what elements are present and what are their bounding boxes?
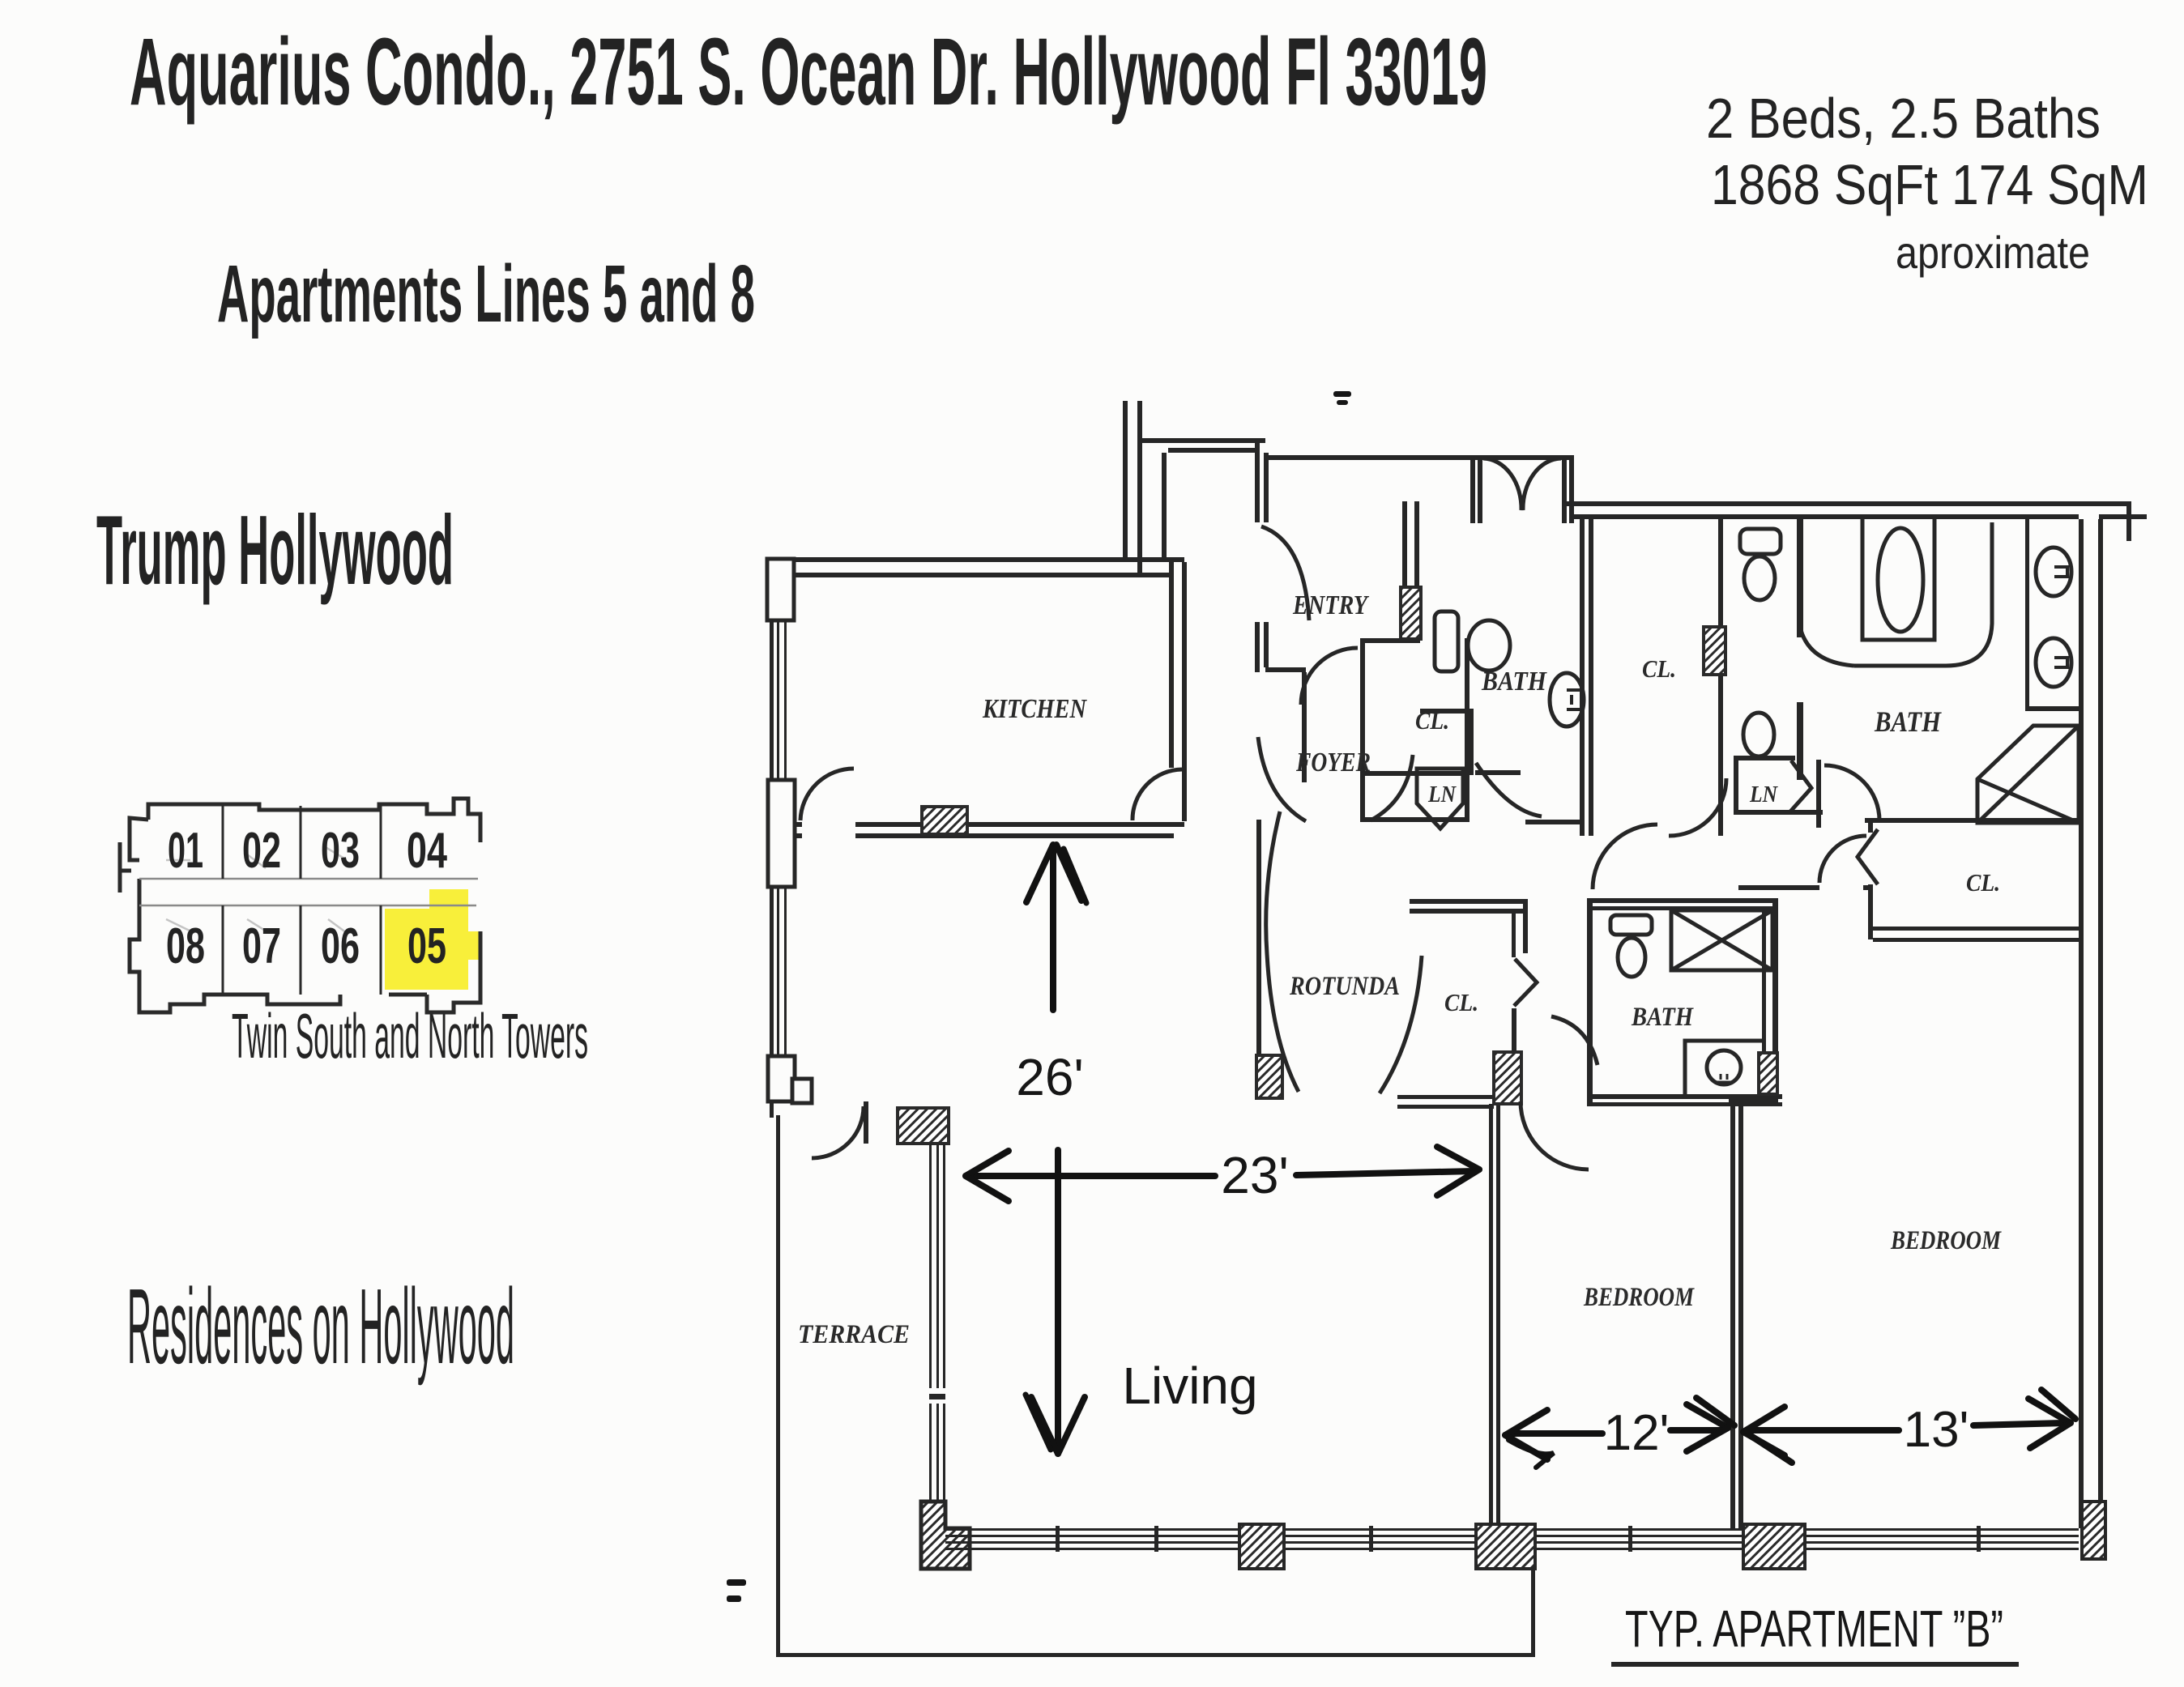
svg-text:2 Beds, 2.5 Baths: 2 Beds, 2.5 Baths <box>1706 87 2101 150</box>
svg-text:23': 23' <box>1221 1146 1288 1204</box>
svg-text:12': 12' <box>1604 1405 1670 1461</box>
svg-text:BATH: BATH <box>1874 705 1942 738</box>
svg-text:05: 05 <box>407 918 446 974</box>
svg-text:CL.: CL. <box>1444 988 1478 1016</box>
svg-text:TERRACE: TERRACE <box>798 1320 910 1349</box>
svg-text:TYP. APARTMENT ”B”: TYP. APARTMENT ”B” <box>1625 1600 2003 1658</box>
svg-text:LN: LN <box>1749 782 1778 807</box>
svg-text:FOYER: FOYER <box>1295 748 1371 777</box>
svg-text:01: 01 <box>168 823 203 879</box>
svg-text:CL.: CL. <box>1415 706 1449 735</box>
svg-text:Aquarius Condo., 2751 S. Ocean: Aquarius Condo., 2751 S. Ocean Dr. Holly… <box>130 19 1487 126</box>
svg-text:KITCHEN: KITCHEN <box>982 694 1087 724</box>
svg-text:BEDROOM: BEDROOM <box>1890 1226 2002 1255</box>
svg-text:06: 06 <box>321 918 360 974</box>
svg-text:aproximate: aproximate <box>1896 227 2090 278</box>
svg-text:LN: LN <box>1427 782 1457 807</box>
svg-text:BATH: BATH <box>1481 667 1547 697</box>
svg-text:CL.: CL. <box>1966 868 2000 897</box>
svg-text:26': 26' <box>1016 1048 1083 1106</box>
svg-text:Residences on Hollywood: Residences on Hollywood <box>127 1267 514 1386</box>
svg-text:13': 13' <box>1904 1402 1969 1458</box>
svg-text:Apartments Lines 5 and 8: Apartments Lines 5 and 8 <box>217 249 755 339</box>
svg-text:02: 02 <box>242 823 281 879</box>
svg-text:04: 04 <box>407 823 447 879</box>
svg-text:07: 07 <box>242 918 281 974</box>
svg-text:Trump Hollywood: Trump Hollywood <box>96 495 454 605</box>
svg-text:1868 SqFt 174 SqM: 1868 SqFt 174 SqM <box>1711 153 2148 216</box>
svg-text:ENTRY: ENTRY <box>1292 590 1370 620</box>
svg-text:BEDROOM: BEDROOM <box>1583 1283 1695 1312</box>
svg-text:CL.: CL. <box>1642 654 1676 683</box>
svg-text:BATH: BATH <box>1631 1003 1694 1032</box>
svg-text:Living: Living <box>1122 1357 1257 1415</box>
svg-text:ROTUNDA: ROTUNDA <box>1289 972 1400 1001</box>
svg-text:08: 08 <box>166 918 205 974</box>
svg-text:03: 03 <box>321 823 360 879</box>
svg-text:Twin South and North Towers: Twin South and North Towers <box>232 1000 588 1071</box>
